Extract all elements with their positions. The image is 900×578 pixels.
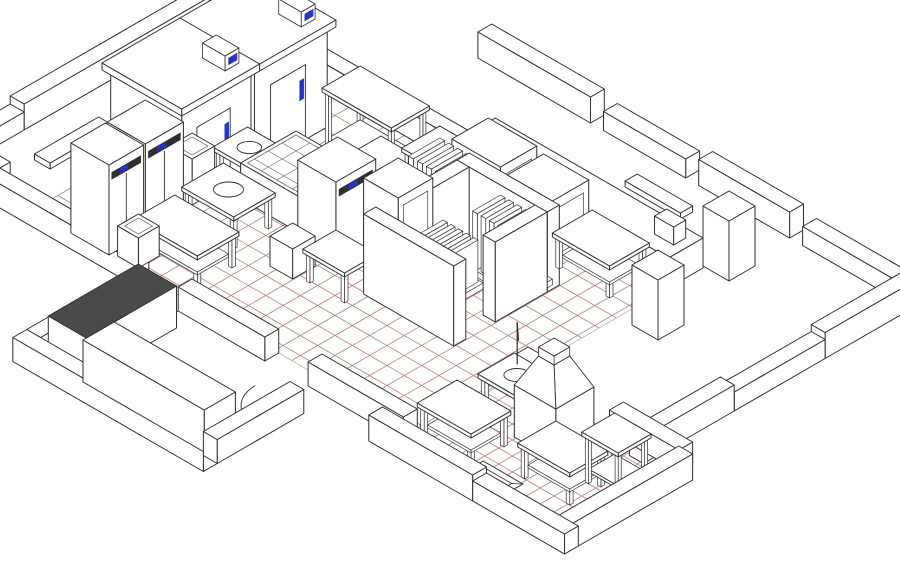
core-wall-s <box>454 259 466 346</box>
dishwash-table-2 <box>521 447 524 479</box>
isometric-kitchen-drawing <box>0 0 900 578</box>
core-side-table <box>341 273 344 303</box>
core-side-table <box>306 253 310 283</box>
round-sink-stand-bowl <box>237 141 262 153</box>
core-side-table <box>345 273 349 303</box>
line-work <box>512 484 523 485</box>
ne-prep-table <box>556 237 560 269</box>
sink-table-left-bowl <box>214 182 244 197</box>
walk-in-cold-room-1-controller <box>300 78 304 101</box>
sink-table-left <box>268 197 272 229</box>
core-wall-e <box>483 235 495 322</box>
isometric-drawing-canvas <box>0 0 900 578</box>
prep-table-left <box>232 236 236 268</box>
dishwash-table-1 <box>504 415 507 447</box>
